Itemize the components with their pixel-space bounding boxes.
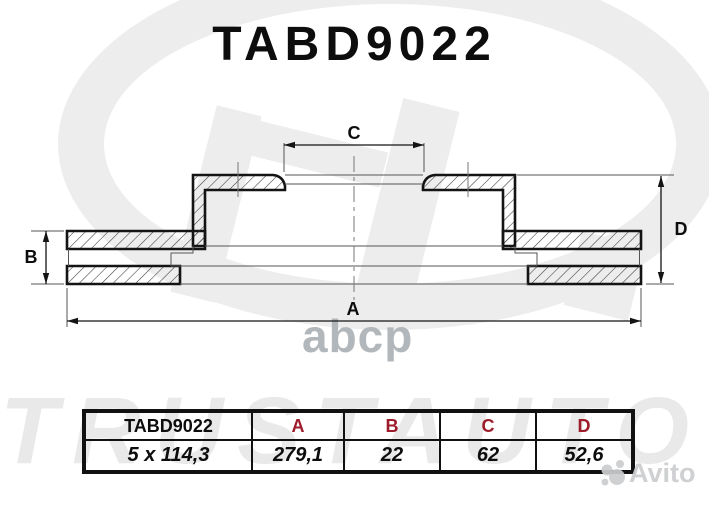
spec-part-number: TABD9022 [85, 412, 252, 440]
avito-watermark: Avito [599, 459, 696, 487]
friction-plate-top-right [503, 231, 641, 249]
spec-header-a: A [252, 412, 344, 440]
spec-fitment: 5 x 114,3 [85, 440, 252, 471]
hat-flange-right [423, 175, 515, 246]
label-d: D [675, 219, 688, 239]
label-a: A [347, 299, 360, 319]
avito-dots-icon [599, 459, 626, 487]
hat-flange-left [193, 175, 285, 246]
friction-plate-top-left [67, 231, 205, 249]
spec-header-b: B [344, 412, 440, 440]
friction-plate-bottom-right [528, 266, 641, 284]
spec-table: TABD9022 A B C D 5 x 114,3 279,1 22 62 5… [82, 409, 635, 474]
friction-plate-bottom-left [67, 266, 180, 284]
brake-disc-spec-card: TRUSTAUTO abcp TABD9022 [0, 0, 709, 506]
spec-value-a: 279,1 [252, 440, 344, 471]
dimension-labels: C A B D [25, 123, 688, 319]
spec-value-c: 62 [440, 440, 536, 471]
label-c: C [348, 123, 361, 143]
label-b: B [25, 247, 38, 267]
spec-header-d: D [536, 412, 632, 440]
spec-header-c: C [440, 412, 536, 440]
part-number-title: TABD9022 [0, 17, 709, 72]
spec-value-b: 22 [344, 440, 440, 471]
avito-text: Avito [629, 460, 696, 487]
